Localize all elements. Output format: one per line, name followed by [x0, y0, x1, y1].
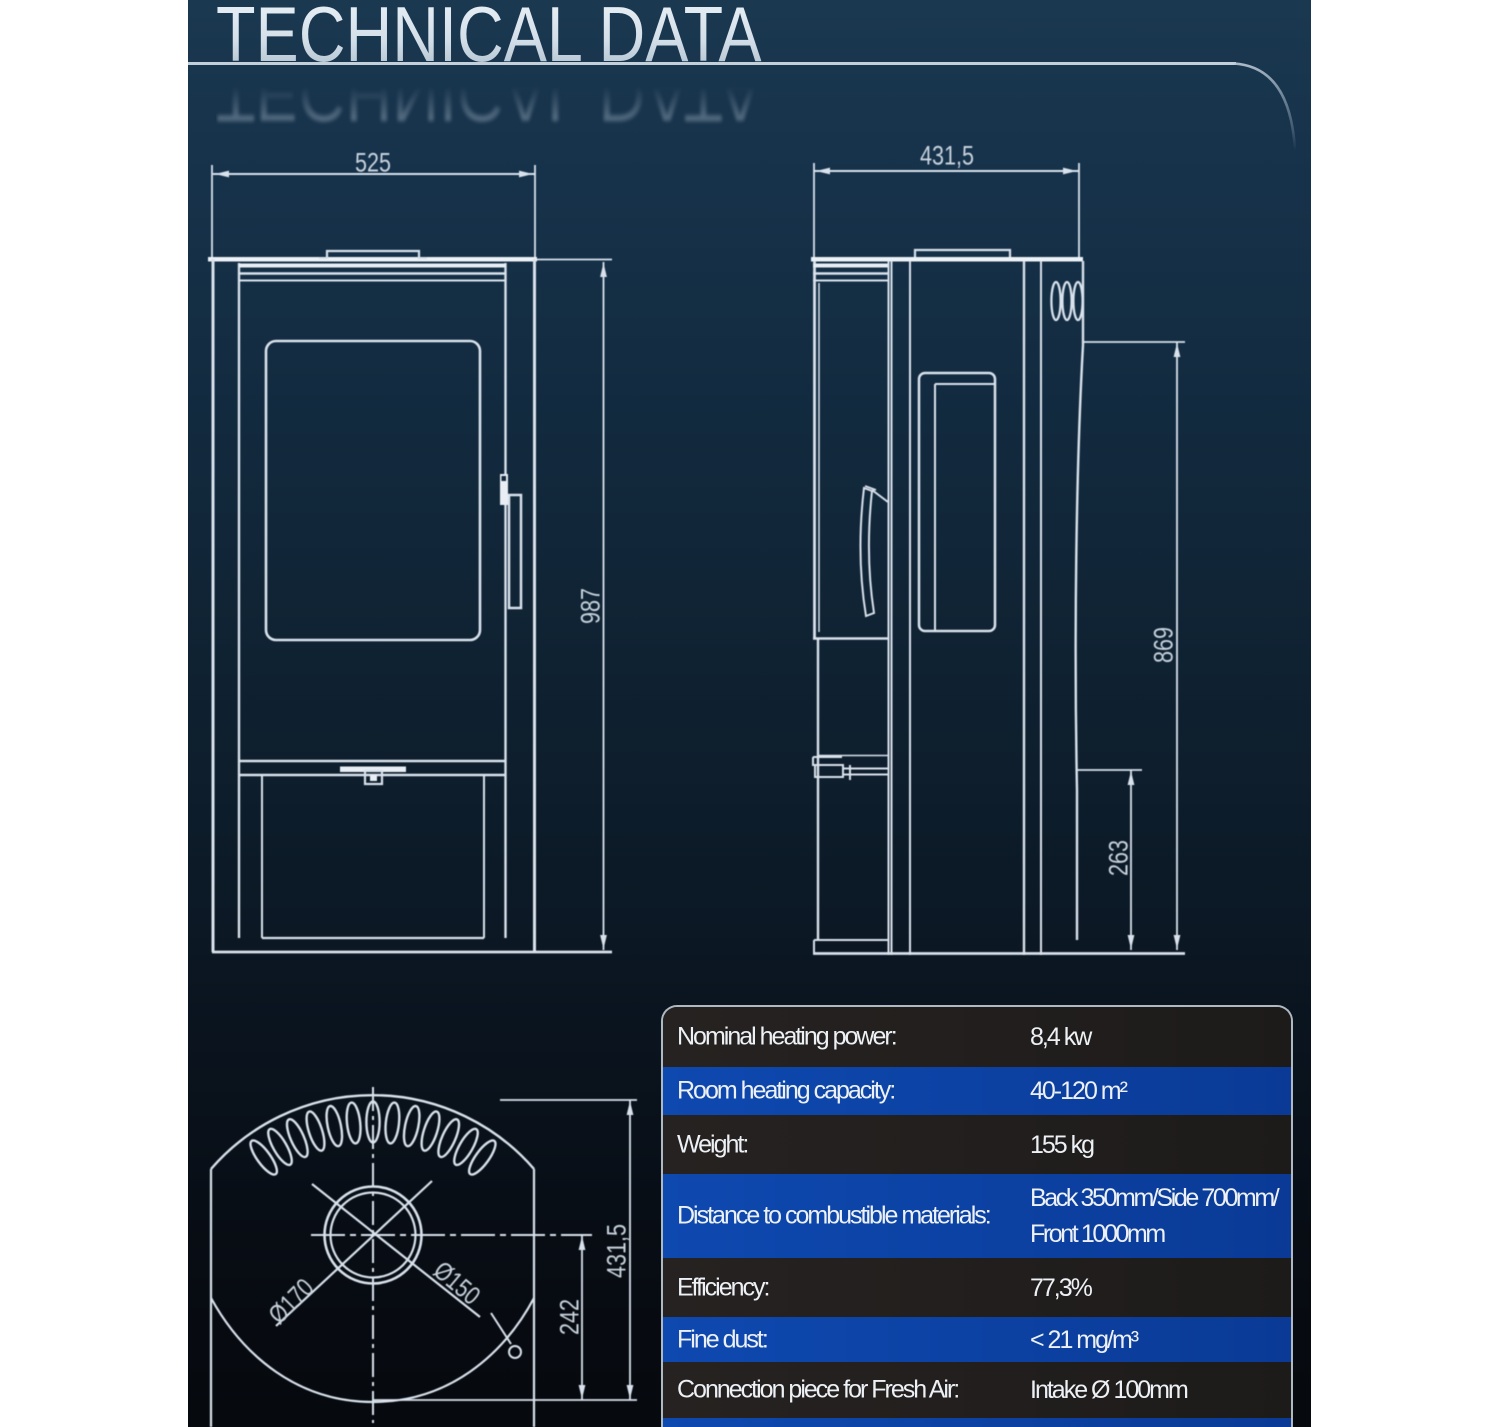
svg-text:987: 987 — [576, 588, 606, 624]
svg-text:263: 263 — [1104, 840, 1134, 876]
svg-text:Ø170: Ø170 — [263, 1273, 319, 1329]
svg-text:Ø150: Ø150 — [428, 1256, 485, 1311]
svg-text:242: 242 — [555, 1299, 585, 1335]
svg-text:431,5: 431,5 — [920, 141, 974, 171]
svg-text:431,5: 431,5 — [602, 1224, 632, 1278]
svg-text:869: 869 — [1149, 627, 1179, 663]
